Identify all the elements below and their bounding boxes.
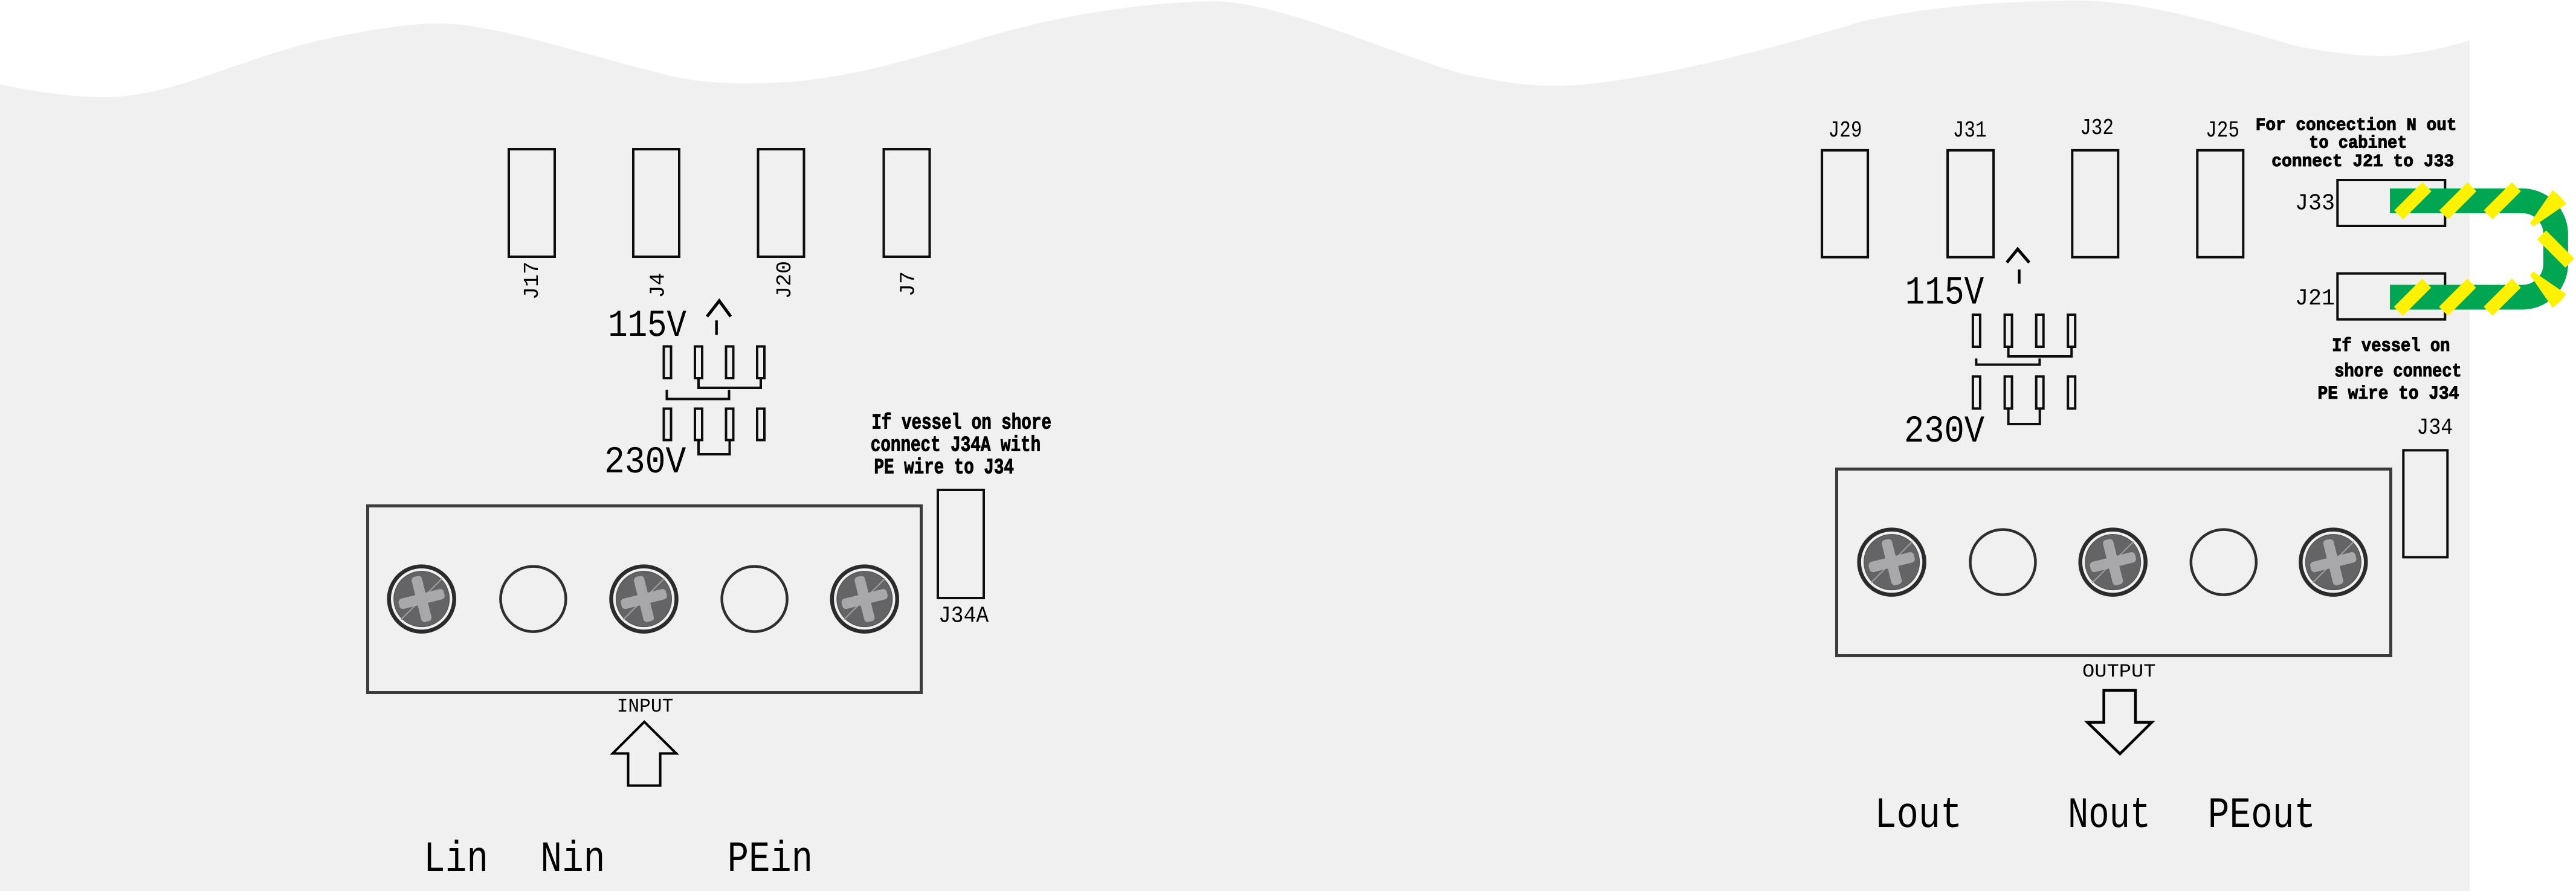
svg-text:J34A: J34A (938, 603, 989, 629)
svg-text:115V: 115V (1905, 271, 1984, 316)
svg-text:shore connect: shore connect (2334, 361, 2461, 382)
svg-text:J17: J17 (520, 262, 544, 300)
svg-text:J29: J29 (1829, 118, 1862, 144)
svg-text:J32: J32 (2080, 115, 2114, 141)
svg-text:Nout: Nout (2068, 791, 2151, 840)
svg-text:115V: 115V (608, 304, 686, 347)
svg-text:J21: J21 (2295, 286, 2335, 312)
svg-text:PE wire to J34: PE wire to J34 (874, 455, 1014, 480)
svg-text:For concection N out: For concection N out (2256, 115, 2457, 135)
svg-text:Nin: Nin (540, 835, 605, 884)
svg-text:Lout: Lout (1874, 791, 1962, 840)
svg-text:J31: J31 (1953, 118, 1987, 144)
svg-text:J4: J4 (646, 272, 670, 298)
svg-text:230V: 230V (1904, 410, 1984, 453)
svg-text:PEout: PEout (2208, 791, 2316, 840)
svg-text:Lin: Lin (424, 835, 488, 884)
svg-text:to cabinet: to cabinet (2309, 133, 2407, 153)
svg-text:connect J34A with: connect J34A with (871, 433, 1041, 458)
svg-text:If vessel on shore: If vessel on shore (871, 411, 1051, 436)
svg-text:connect J21 to J33: connect J21 to J33 (2271, 152, 2454, 172)
svg-text:J33: J33 (2295, 191, 2335, 217)
svg-text:PE wire to J34: PE wire to J34 (2318, 384, 2459, 405)
svg-text:J25: J25 (2206, 118, 2239, 144)
svg-text:INPUT: INPUT (617, 695, 674, 718)
svg-text:J7: J7 (897, 271, 921, 297)
svg-text:J34: J34 (2416, 415, 2453, 441)
svg-text:If vessel on: If vessel on (2332, 336, 2450, 357)
svg-text:OUTPUT: OUTPUT (2082, 661, 2156, 683)
svg-text:PEin: PEin (728, 835, 813, 884)
svg-text:J20: J20 (773, 261, 797, 299)
svg-text:230V: 230V (604, 441, 686, 484)
